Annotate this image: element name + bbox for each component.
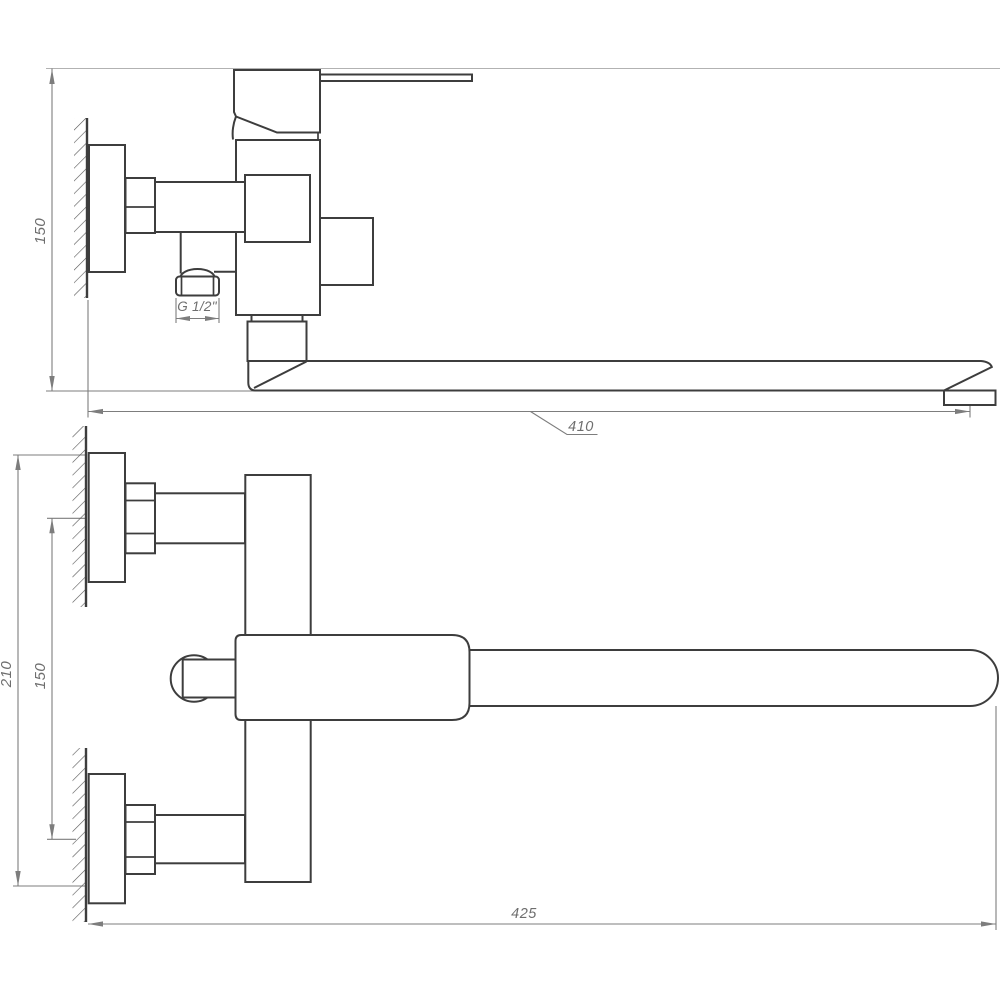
arrow-up-icon: [15, 455, 20, 470]
dimension-label-depth: 210: [0, 661, 15, 689]
wall-section-upper: [73, 426, 87, 607]
faucet-dimension-drawing: 150 410: [0, 0, 1000, 1000]
handle-cap: [234, 70, 320, 133]
arrow-down-icon: [15, 871, 20, 886]
wall-hatch: [74, 118, 88, 298]
technical-drawing-canvas: 150 410: [0, 0, 1000, 1000]
check-valve-body: [183, 660, 236, 698]
arrow-right-icon: [205, 316, 219, 321]
spout-connector: [248, 322, 307, 362]
arrow-right-icon: [955, 409, 970, 414]
arrow-left-icon: [88, 409, 103, 414]
check-valve: [176, 277, 219, 296]
mixer-block: [236, 635, 470, 720]
handle-lever: [320, 75, 472, 82]
supply-pipe-lower: [155, 815, 245, 863]
supply-pipe-upper: [155, 493, 245, 543]
spout-plan: [468, 650, 998, 706]
spout: [248, 361, 992, 391]
wall-section: [74, 118, 88, 298]
arrow-down-icon: [49, 824, 54, 839]
wall-section-lower: [73, 748, 87, 922]
cartridge-cover: [245, 175, 310, 242]
arrow-up-icon: [49, 69, 54, 84]
dimension-label-reach: 410: [568, 419, 594, 435]
faucet-plan: [89, 453, 998, 903]
plan-view: 210 150: [0, 426, 998, 930]
aerator: [944, 391, 996, 406]
supply-pipe: [155, 182, 245, 232]
hex-nut-lower: [126, 805, 156, 874]
arrow-right-icon: [981, 921, 996, 926]
shower-outlet: [320, 218, 373, 285]
dimension-label-height: 150: [32, 218, 49, 245]
wall-hatch: [73, 748, 87, 922]
dimension-label-length: 425: [511, 906, 537, 922]
faucet-side: [89, 70, 996, 405]
dimension-label-thread: G 1/2": [177, 299, 218, 314]
wall-hatch: [73, 426, 87, 607]
wall-flange-lower: [89, 774, 125, 903]
arrow-left-icon: [88, 921, 103, 926]
hex-nut-upper: [126, 483, 156, 553]
handle-skirt-arc: [233, 117, 236, 140]
wall-flange: [89, 145, 125, 272]
dimension-label-centers: 150: [32, 663, 49, 690]
hex-nut: [126, 178, 156, 233]
arrow-left-icon: [176, 316, 190, 321]
dimension-thread: G 1/2": [176, 298, 219, 323]
arrow-up-icon: [49, 518, 54, 533]
arrow-down-icon: [49, 376, 54, 391]
side-view: 150 410: [32, 69, 1000, 436]
wall-flange-upper: [89, 453, 125, 582]
